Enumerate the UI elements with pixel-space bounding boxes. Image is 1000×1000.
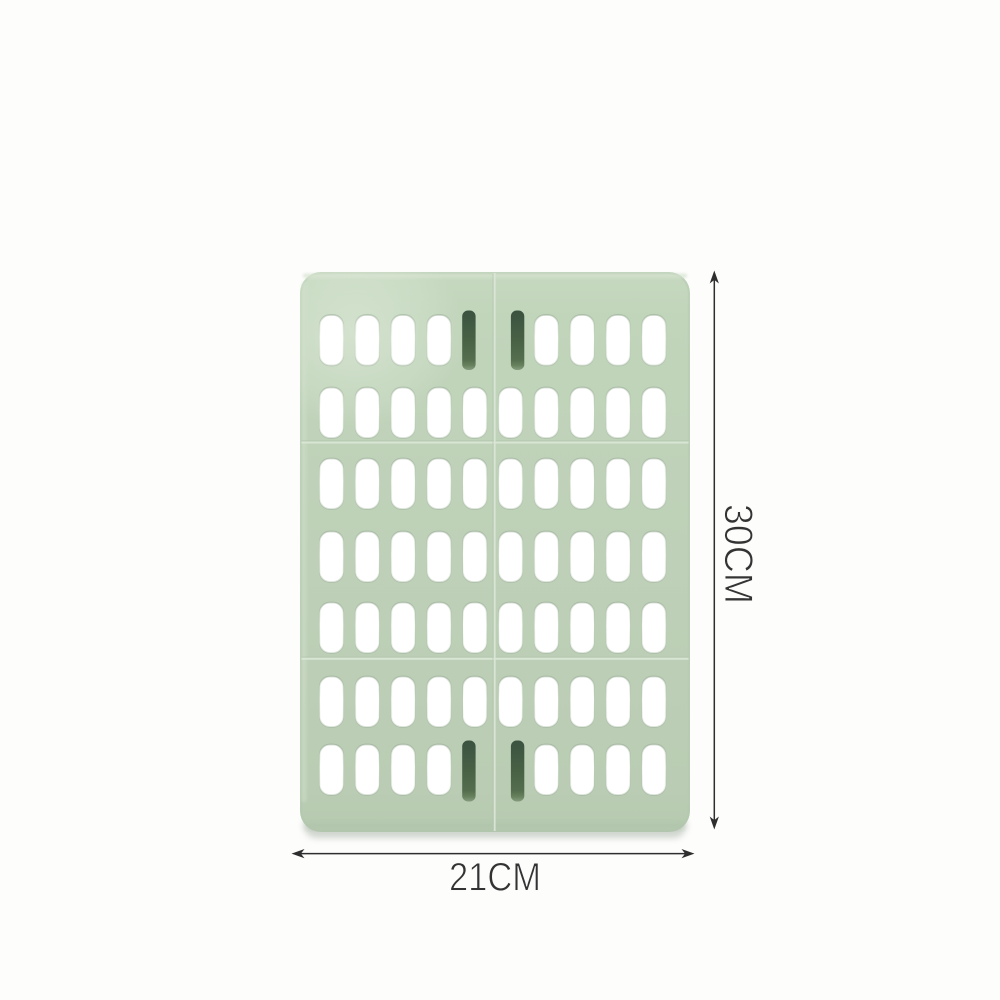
svg-text:30CM: 30CM <box>716 504 760 604</box>
svg-text:21CM: 21CM <box>449 856 541 900</box>
